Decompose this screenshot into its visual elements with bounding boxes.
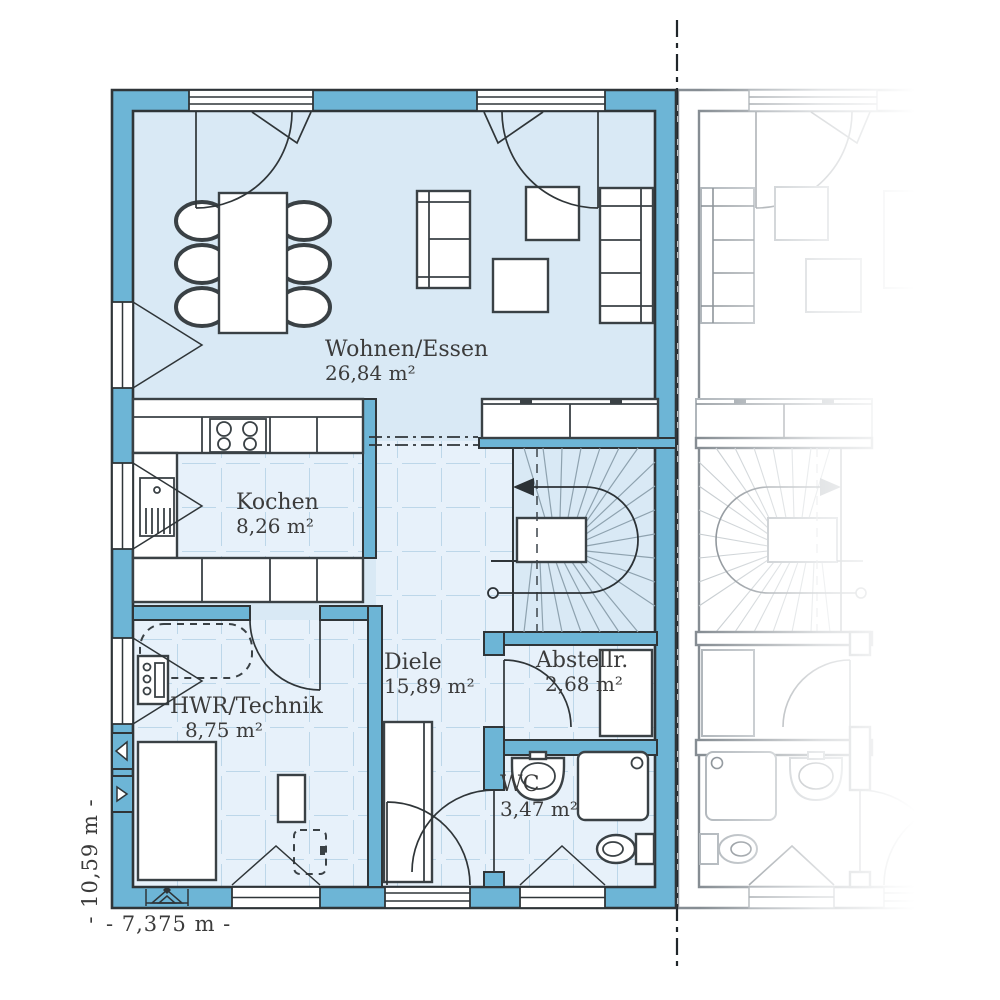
room-area-diele: 15,89 m² (384, 674, 475, 698)
stair-wall (479, 438, 676, 448)
floor-plan-page: Wohnen/Essen 26,84 m² Kochen 8,26 m² Die… (0, 0, 1000, 1000)
kitchen-counter-bottom (133, 558, 363, 602)
fade-overlay (678, 0, 1000, 1000)
room-label-abstellraum: Abstellr. (535, 648, 628, 673)
room-area-kochen: 8,26 m² (236, 514, 314, 538)
room-label-wc: WC (500, 772, 539, 797)
kitchen-counter-top (133, 399, 363, 453)
stair-landing (517, 518, 586, 562)
room-label-hwr-technik: HWR/Technik (170, 694, 323, 719)
dining-group (176, 193, 330, 333)
room-area-wohnen-essen: 26,84 m² (325, 361, 416, 385)
heating-manifold (138, 656, 168, 704)
dimension-label-width: - 7,375 m - (106, 912, 231, 936)
sideboard (482, 399, 658, 438)
room-label-wohnen-essen: Wohnen/Essen (325, 337, 488, 362)
diele-wc-wall-stub (484, 872, 504, 887)
room-label-kochen: Kochen (236, 490, 319, 515)
hwr-diele-wall (368, 606, 382, 887)
room-label-diele: Diele (384, 650, 442, 675)
coffee-table (526, 187, 579, 240)
dining-table (219, 193, 287, 333)
heat-pump (138, 742, 216, 880)
wall-vent-right (112, 776, 133, 812)
kitchen-hwr-wall-stub (320, 606, 368, 620)
main-unit (112, 90, 676, 908)
kitchen-peninsula-wall (363, 399, 376, 558)
room-area-wc: 3,47 m² (500, 797, 578, 821)
room-area-abstellraum: 2,68 m² (545, 672, 623, 696)
shower (578, 752, 648, 820)
diele-wall-stub (484, 632, 504, 655)
kitchen-hwr-wall (133, 606, 250, 620)
kitchen-counter-side (133, 453, 177, 558)
sofa-large (600, 188, 653, 323)
sofa-small (417, 191, 470, 288)
room-area-hwr-technik: 8,75 m² (185, 718, 263, 742)
dimension-label-height: - 10,59 m - (78, 798, 102, 923)
side-table (493, 259, 548, 312)
toilet (597, 834, 654, 864)
abstellraum-top-wall (484, 632, 657, 645)
hwr-device (278, 775, 305, 822)
wall-vent-left (112, 733, 133, 769)
floor-plan: Wohnen/Essen 26,84 m² Kochen 8,26 m² Die… (0, 0, 1000, 1000)
